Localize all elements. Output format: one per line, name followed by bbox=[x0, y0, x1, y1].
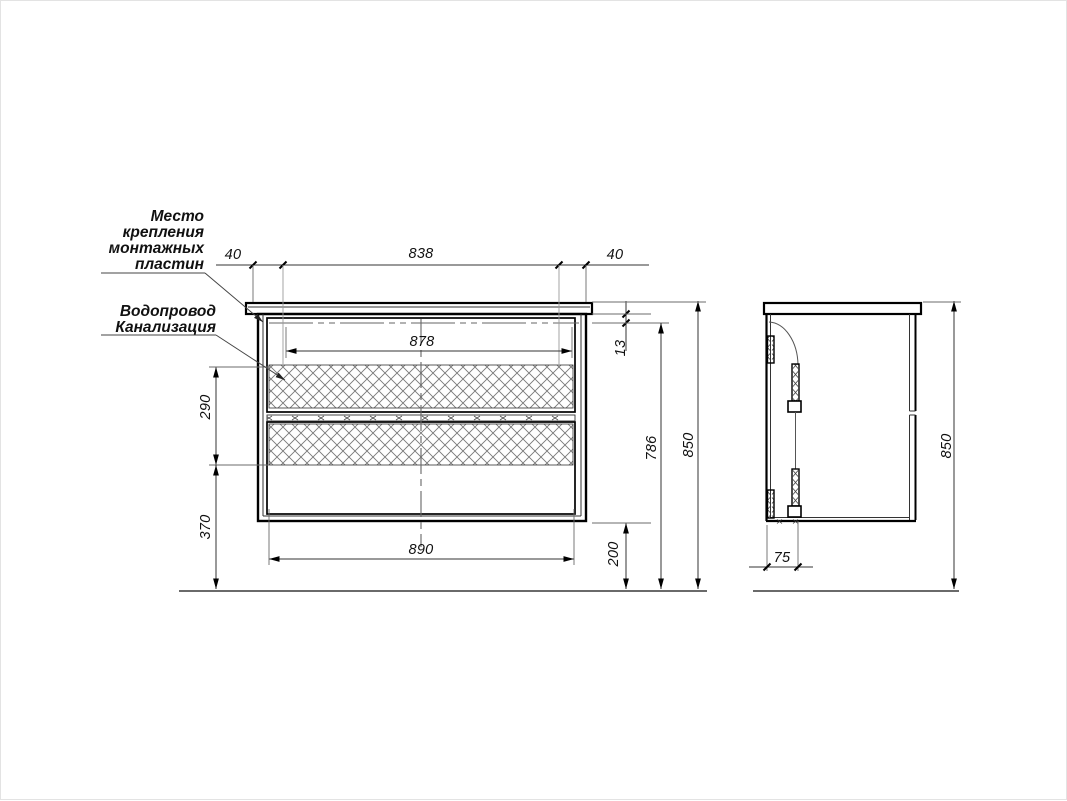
front-countertop bbox=[246, 303, 592, 314]
leader-line-plumbing bbox=[216, 335, 285, 380]
dim-top-center: 838 bbox=[408, 246, 433, 262]
label-plumbing-line-1: Водопровод bbox=[120, 303, 217, 320]
side-slide-lower bbox=[792, 469, 799, 506]
technical-drawing-canvas: 40 838 40 878 13 290 370 890 200 bbox=[1, 1, 1067, 801]
label-plumbing-line-2: Канализация bbox=[115, 319, 216, 336]
label-mounting-plates-line-2: крепления bbox=[123, 224, 204, 241]
dim-service-zone-height: 290 bbox=[198, 394, 214, 420]
label-mounting-plates-line-1: Место bbox=[151, 208, 204, 225]
dim-top-left: 40 bbox=[225, 247, 242, 263]
dim-mount-line-height: 786 bbox=[644, 435, 660, 461]
side-slide-upper-foot bbox=[788, 401, 801, 412]
dim-lower-zone-height: 370 bbox=[198, 514, 214, 539]
side-bracket-back-lower bbox=[768, 490, 775, 518]
dim-inner-width: 878 bbox=[409, 334, 434, 350]
dim-plate-offset: 13 bbox=[613, 340, 629, 357]
drawing-page: 40 838 40 878 13 290 370 890 200 bbox=[0, 0, 1067, 800]
side-countertop bbox=[764, 303, 921, 314]
dim-bracket-depth: 75 bbox=[774, 550, 791, 566]
dim-total-height-front: 850 bbox=[681, 432, 697, 457]
dim-total-height-side: 850 bbox=[939, 433, 955, 458]
label-mounting-plates-line-4: пластин bbox=[135, 256, 205, 273]
side-slide-lower-foot bbox=[788, 506, 801, 517]
side-bracket-back-upper bbox=[768, 336, 775, 363]
label-mounting-plates-line-3: монтажных bbox=[109, 240, 206, 257]
side-dimensions: 75 850 bbox=[749, 301, 961, 589]
side-slide-upper bbox=[792, 364, 799, 401]
dim-floor-clearance: 200 bbox=[606, 541, 622, 567]
dim-cabinet-width: 890 bbox=[408, 542, 433, 558]
dim-top-right: 40 bbox=[607, 247, 624, 263]
side-view bbox=[753, 303, 959, 591]
